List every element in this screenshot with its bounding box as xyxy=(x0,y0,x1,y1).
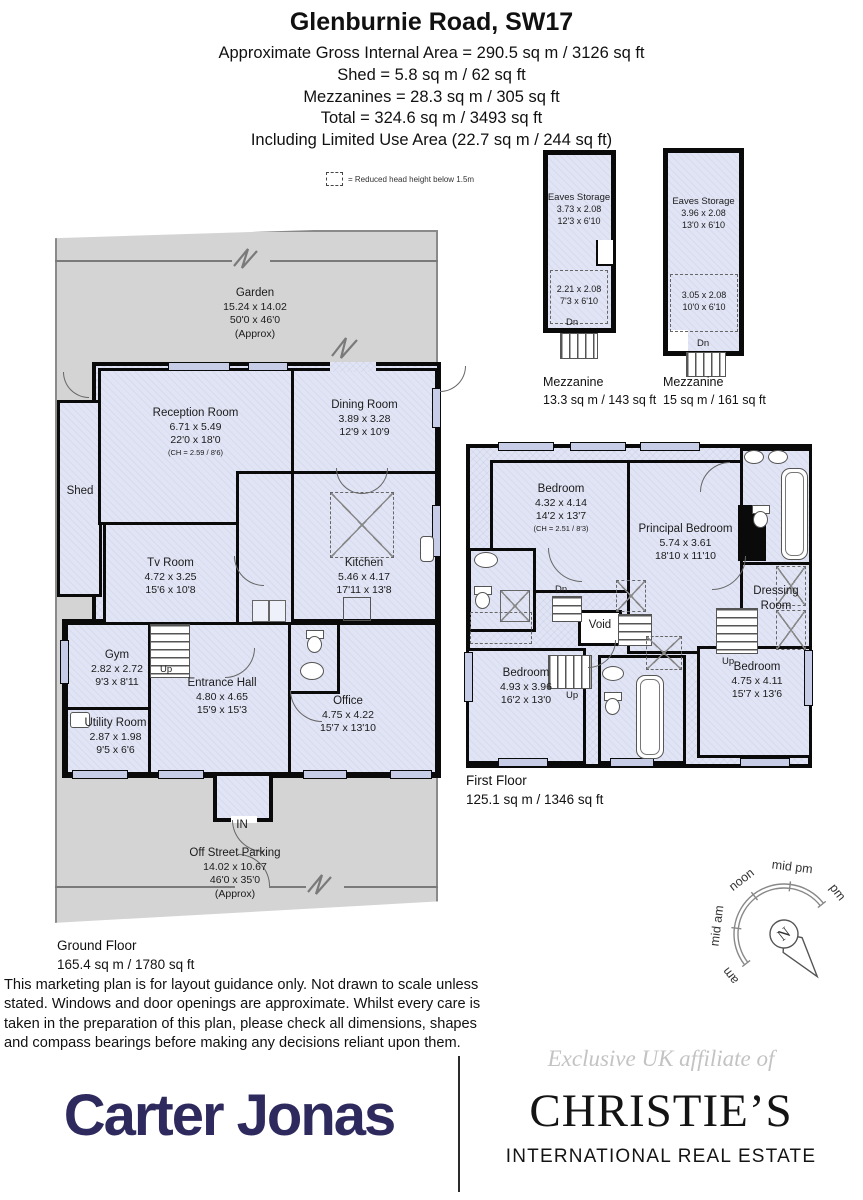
window xyxy=(570,442,626,451)
fence-zigzag-icon xyxy=(330,334,370,362)
mezz2-eaves-label: Eaves Storage 3.96 x 2.08 13'0 x 6'10 xyxy=(666,196,741,232)
up-label: Up xyxy=(566,690,578,701)
window xyxy=(640,442,700,451)
area-line: Mezzanines = 28.3 sq m / 305 sq ft xyxy=(0,87,863,109)
room-label-principal: Principal Bedroom 5.74 x 3.61 18'10 x 11… xyxy=(608,522,763,564)
legend-text: = Reduced head height below 1.5m xyxy=(348,175,474,184)
shed-label: Shed xyxy=(58,484,102,499)
toilet-icon xyxy=(474,586,490,610)
room-label-kitchen: Kitchen 5.46 x 4.17 17'11 x 13'8 xyxy=(308,556,420,598)
window xyxy=(390,770,432,779)
sink-icon xyxy=(768,450,788,464)
window xyxy=(72,770,128,779)
room-label-void: Void xyxy=(580,618,620,633)
mezzanine1-caption: Mezzanine 13.3 sq m / 143 sq ft xyxy=(543,374,656,409)
stairs xyxy=(560,333,598,359)
dn-label: Dn xyxy=(697,338,709,349)
sink-icon xyxy=(300,662,324,680)
toilet-icon xyxy=(604,692,620,716)
mezz1-lower-label: 2.21 x 2.08 7'3 x 6'10 xyxy=(546,284,612,307)
room-label-bedroom-tl: Bedroom 4.32 x 4.14 14'2 x 13'7 (CH = 2.… xyxy=(498,482,624,533)
reduced-head-height-icon xyxy=(326,172,343,186)
window xyxy=(498,758,548,767)
room-label-gym: Gym 2.82 x 2.72 9'3 x 8'11 xyxy=(72,648,162,690)
compass-sector-label: am xyxy=(720,965,742,987)
up-label: Up xyxy=(160,664,172,675)
compass-sector-label: mid am xyxy=(707,905,726,947)
area-line: Approximate Gross Internal Area = 290.5 … xyxy=(0,43,863,65)
sink-icon xyxy=(744,450,764,464)
stairs xyxy=(552,596,582,622)
legend: = Reduced head height below 1.5m xyxy=(326,172,474,186)
ground-floor-caption: Ground Floor 165.4 sq m / 1780 sq ft xyxy=(57,937,194,975)
compass-sector-label: mid pm xyxy=(771,857,813,876)
fence-zigzag-icon xyxy=(232,246,270,272)
toilet-icon xyxy=(306,630,322,654)
window xyxy=(303,770,347,779)
sink-icon xyxy=(474,552,498,568)
sink-icon xyxy=(420,536,434,562)
christies-logo: CHRISTIE’S xyxy=(478,1084,844,1138)
mezzanine2-caption: Mezzanine 15 sq m / 161 sq ft xyxy=(663,374,766,409)
compass-sector-label: noon xyxy=(726,866,757,894)
window xyxy=(60,640,69,684)
window xyxy=(432,388,441,428)
bathtub-icon xyxy=(636,675,664,759)
window xyxy=(610,758,654,767)
mezz2-lower-label: 3.05 x 2.08 10'0 x 6'10 xyxy=(668,290,740,313)
room-label-bedroom-bl: Bedroom 4.93 x 3.96 16'2 x 13'0 xyxy=(470,666,582,708)
stair-void-marker xyxy=(616,580,646,612)
reduced-head-height-area xyxy=(646,636,682,670)
room-label-office: Office 4.75 x 4.22 15'7 x 13'10 xyxy=(290,694,406,736)
room-label-bedroom-br: Bedroom 4.75 x 4.11 15'7 x 13'6 xyxy=(698,660,816,702)
window xyxy=(168,362,230,371)
dn-label: Dn xyxy=(566,317,578,328)
disclaimer-text: This marketing plan is for layout guidan… xyxy=(4,976,482,1054)
in-label: IN xyxy=(228,818,256,833)
window xyxy=(498,442,554,451)
page-title: Glenburnie Road, SW17 xyxy=(0,8,863,37)
up-label: Up xyxy=(722,656,734,667)
dining-garden-opening xyxy=(330,362,376,372)
christies-sub-logo: INTERNATIONAL REAL ESTATE xyxy=(478,1146,844,1168)
room-label-utility: Utility Room 2.87 x 1.98 9'5 x 6'6 xyxy=(68,716,163,758)
room-label-hall: Entrance Hall 4.80 x 4.65 15'9 x 15'3 xyxy=(158,676,286,718)
sink-icon xyxy=(602,666,624,681)
room-label-reception: Reception Room 6.71 x 5.49 22'0 x 18'0 (… xyxy=(123,406,268,457)
window xyxy=(158,770,204,779)
mezz1-notch xyxy=(596,240,613,266)
affiliate-line: Exclusive UK affiliate of xyxy=(478,1046,844,1072)
stove-icon xyxy=(343,597,371,621)
area-line: Shed = 5.8 sq m / 62 sq ft xyxy=(0,65,863,87)
carter-jonas-logo: Carter Jonas xyxy=(28,1082,430,1149)
parking-label: Off Street Parking 14.02 x 10.67 46'0 x … xyxy=(173,846,297,901)
bathtub-icon xyxy=(781,468,808,560)
porch xyxy=(213,772,273,822)
header: Glenburnie Road, SW17 Approximate Gross … xyxy=(0,8,863,152)
compass-sector-label: pm xyxy=(827,881,849,903)
area-line: Total = 324.6 sq m / 3493 sq ft xyxy=(0,108,863,130)
stairs xyxy=(716,608,758,654)
window xyxy=(248,362,288,371)
kitchen-island xyxy=(330,492,394,558)
door-arc xyxy=(440,366,466,392)
room-label-dining: Dining Room 3.89 x 3.28 12'9 x 10'9 xyxy=(302,398,427,440)
dn-label: Dn xyxy=(555,584,567,595)
fence-zigzag-icon xyxy=(306,872,344,898)
floorplan-page: Glenburnie Road, SW17 Approximate Gross … xyxy=(0,0,863,1200)
room-label-dressing: Dressing Room xyxy=(747,584,805,613)
wardrobe-icon xyxy=(776,610,806,650)
shower-icon xyxy=(500,590,530,622)
window xyxy=(740,758,790,767)
garden-label: Garden 15.24 x 14.02 50'0 x 46'0 (Approx… xyxy=(195,286,315,341)
first-floor-caption: First Floor 125.1 sq m / 1346 sq ft xyxy=(466,772,603,810)
room-label-tv: Tv Room 4.72 x 3.25 15'6 x 10'8 xyxy=(108,556,233,598)
steps xyxy=(252,600,286,622)
logo-divider xyxy=(458,1056,460,1192)
mezz2-notch xyxy=(668,330,688,351)
mezz1-eaves-label: Eaves Storage 3.73 x 2.08 12'3 x 6'10 xyxy=(546,192,612,228)
compass-rose: N am mid am noon mid pm pm xyxy=(706,836,862,1006)
